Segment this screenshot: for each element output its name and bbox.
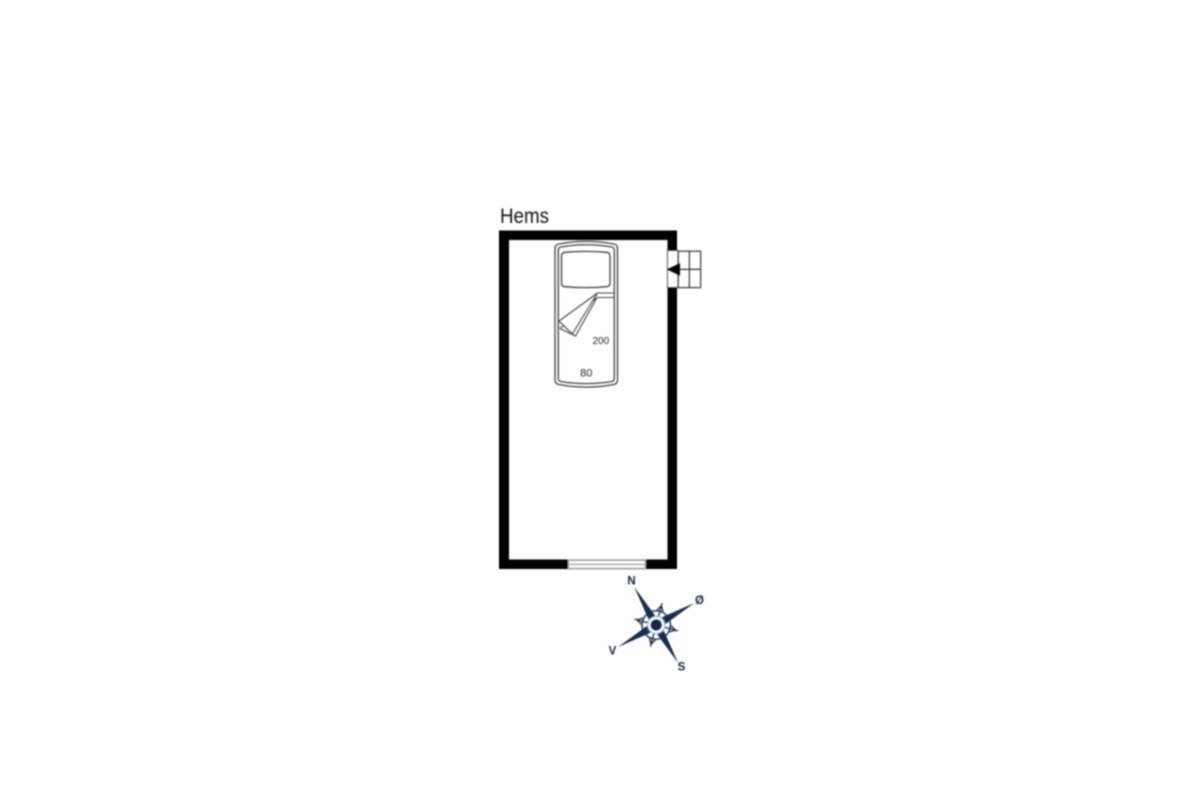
svg-text:S: S: [678, 662, 686, 674]
svg-text:N: N: [627, 576, 635, 588]
svg-text:V: V: [609, 646, 617, 658]
svg-text:200: 200: [592, 336, 609, 347]
svg-text:Ø: Ø: [695, 595, 704, 607]
svg-text:80: 80: [580, 368, 592, 380]
svg-text:Hems: Hems: [500, 204, 549, 228]
